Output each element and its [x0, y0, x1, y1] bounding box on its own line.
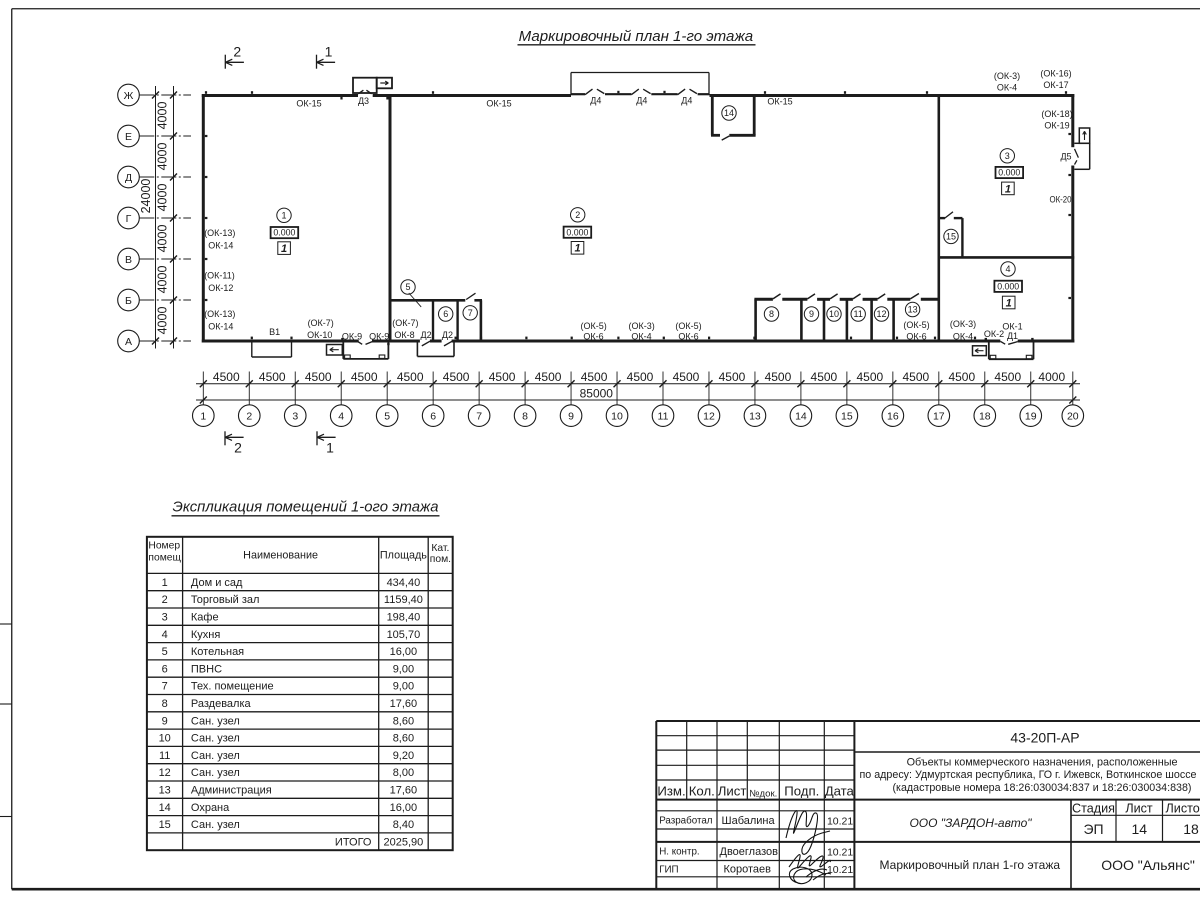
svg-text:12: 12	[703, 410, 715, 422]
svg-text:17: 17	[933, 410, 945, 422]
svg-text:В1: В1	[269, 327, 280, 337]
svg-text:(ОК-3): (ОК-3)	[950, 319, 976, 329]
svg-text:9: 9	[162, 715, 168, 727]
svg-text:11: 11	[854, 309, 863, 319]
svg-text:4000: 4000	[156, 225, 170, 253]
svg-text:2025,90: 2025,90	[384, 836, 424, 848]
svg-text:0.000: 0.000	[998, 168, 1020, 178]
svg-text:(ОК-5): (ОК-5)	[903, 320, 929, 330]
svg-text:Д1: Д1	[1007, 331, 1018, 341]
svg-text:4500: 4500	[305, 370, 332, 384]
svg-text:4: 4	[338, 410, 344, 422]
svg-text:Сан. узел: Сан. узел	[191, 750, 240, 762]
svg-text:9: 9	[568, 410, 574, 422]
svg-text:105,70: 105,70	[387, 629, 421, 641]
svg-text:13: 13	[159, 784, 171, 796]
svg-text:1: 1	[325, 44, 333, 60]
svg-text:Д4: Д4	[636, 96, 647, 106]
svg-text:4500: 4500	[673, 370, 700, 384]
svg-text:Листов: Листов	[1166, 801, 1200, 815]
svg-text:ОК-17: ОК-17	[1043, 80, 1068, 90]
svg-text:Изм.: Изм.	[657, 784, 685, 799]
svg-text:Площадь: Площадь	[380, 550, 427, 562]
svg-text:1: 1	[200, 410, 206, 422]
svg-text:8,60: 8,60	[393, 733, 414, 745]
svg-text:Д5: Д5	[1060, 151, 1071, 161]
svg-text:13: 13	[908, 305, 918, 315]
svg-text:В: В	[125, 254, 132, 266]
svg-text:85000: 85000	[580, 386, 614, 400]
svg-text:4: 4	[1005, 264, 1010, 274]
svg-text:2: 2	[162, 594, 168, 606]
svg-text:18: 18	[979, 410, 991, 422]
svg-text:8: 8	[162, 698, 168, 710]
svg-text:ОК-15: ОК-15	[296, 99, 321, 109]
svg-text:4500: 4500	[627, 370, 654, 384]
svg-text:15: 15	[841, 410, 853, 422]
svg-text:Разработал: Разработал	[659, 816, 713, 827]
svg-text:Кат.: Кат.	[431, 543, 449, 554]
svg-text:Д4: Д4	[681, 96, 692, 106]
svg-text:№док.: №док.	[749, 788, 777, 799]
svg-text:4: 4	[162, 629, 168, 641]
svg-text:пом.: пом.	[430, 554, 451, 565]
svg-text:4500: 4500	[535, 370, 562, 384]
svg-text:Д2: Д2	[442, 330, 453, 340]
svg-text:434,40: 434,40	[387, 577, 421, 589]
svg-text:2: 2	[246, 410, 252, 422]
svg-text:ЭП: ЭП	[1083, 821, 1103, 837]
svg-text:Н. контр.: Н. контр.	[659, 847, 699, 858]
svg-text:3: 3	[292, 410, 298, 422]
svg-text:4500: 4500	[948, 370, 975, 384]
svg-text:1: 1	[162, 577, 168, 589]
svg-text:Объекты коммерческого назначен: Объекты коммерческого назначения, распол…	[907, 756, 1178, 768]
svg-text:5: 5	[162, 646, 168, 658]
svg-text:(ОК-16): (ОК-16)	[1040, 69, 1071, 79]
svg-text:15: 15	[946, 232, 956, 242]
svg-text:(ОК-7): (ОК-7)	[392, 318, 418, 328]
svg-text:17,60: 17,60	[390, 698, 418, 710]
svg-text:Сан. узел: Сан. узел	[191, 733, 240, 745]
svg-text:Б: Б	[125, 295, 132, 307]
svg-text:ОК-4: ОК-4	[997, 83, 1017, 93]
svg-text:Дом и сад: Дом и сад	[191, 577, 243, 589]
svg-text:4500: 4500	[351, 370, 378, 384]
svg-text:14: 14	[1132, 821, 1148, 837]
svg-text:Тех. помещение: Тех. помещение	[191, 681, 274, 693]
svg-text:Маркировочный план 1-го этажа: Маркировочный план 1-го этажа	[519, 28, 754, 45]
svg-text:15: 15	[159, 819, 171, 831]
svg-text:9,00: 9,00	[393, 681, 414, 693]
svg-text:10: 10	[611, 410, 623, 422]
svg-text:8,00: 8,00	[393, 767, 414, 779]
svg-text:20: 20	[1067, 410, 1079, 422]
svg-text:(ОК-3): (ОК-3)	[994, 71, 1020, 81]
svg-text:7: 7	[468, 308, 473, 318]
svg-text:ОК-14: ОК-14	[208, 241, 233, 251]
svg-text:(ОК-11): (ОК-11)	[204, 270, 235, 280]
svg-text:12: 12	[159, 767, 171, 779]
svg-text:ОК-15: ОК-15	[767, 97, 792, 107]
svg-text:4000: 4000	[156, 307, 170, 335]
svg-text:ОК-10: ОК-10	[307, 330, 332, 340]
svg-text:10: 10	[159, 733, 171, 745]
svg-text:Д2: Д2	[421, 330, 432, 340]
svg-text:10.21: 10.21	[827, 846, 853, 858]
svg-text:3: 3	[1005, 151, 1010, 161]
svg-text:4500: 4500	[213, 370, 240, 384]
svg-text:(ОК-7): (ОК-7)	[308, 318, 334, 328]
svg-text:(ОК-3): (ОК-3)	[628, 321, 654, 331]
svg-text:Лист: Лист	[718, 784, 747, 799]
svg-text:8: 8	[522, 410, 528, 422]
svg-text:Двоеглазов: Двоеглазов	[720, 846, 779, 858]
svg-text:Охрана: Охрана	[191, 802, 230, 814]
svg-text:Экспликация помещений 1-ого эт: Экспликация помещений 1-ого этажа	[173, 499, 439, 516]
svg-text:1: 1	[1005, 183, 1011, 195]
svg-text:помещ.: помещ.	[148, 553, 183, 564]
svg-text:7: 7	[476, 410, 482, 422]
svg-text:Номер: Номер	[148, 541, 180, 552]
svg-text:7: 7	[162, 681, 168, 693]
svg-text:Кол.: Кол.	[689, 784, 715, 799]
svg-text:6: 6	[430, 410, 436, 422]
svg-text:6: 6	[443, 309, 448, 319]
svg-text:А: А	[125, 336, 132, 348]
svg-text:ОК-8: ОК-8	[394, 330, 414, 340]
svg-text:12: 12	[876, 309, 886, 319]
svg-text:9,00: 9,00	[393, 663, 414, 675]
svg-text:4500: 4500	[857, 370, 884, 384]
svg-text:0.000: 0.000	[566, 227, 588, 237]
svg-text:1159,40: 1159,40	[384, 594, 423, 606]
svg-text:0.000: 0.000	[273, 228, 295, 238]
svg-text:Ж: Ж	[124, 90, 134, 102]
svg-text:2: 2	[233, 44, 241, 60]
svg-text:13: 13	[749, 410, 761, 422]
svg-text:Г: Г	[126, 213, 132, 225]
svg-text:Д3: Д3	[358, 96, 369, 106]
svg-text:Д: Д	[125, 172, 132, 184]
svg-text:Лист: Лист	[1125, 801, 1153, 815]
svg-text:(ОК-5): (ОК-5)	[675, 321, 701, 331]
svg-text:198,40: 198,40	[387, 611, 421, 623]
svg-text:Администрация: Администрация	[191, 784, 272, 796]
svg-text:Шабалина: Шабалина	[722, 815, 776, 827]
svg-text:9: 9	[809, 309, 814, 319]
svg-text:2: 2	[575, 210, 580, 220]
svg-text:(ОК-5): (ОК-5)	[580, 321, 606, 331]
svg-text:16,00: 16,00	[390, 802, 418, 814]
svg-text:ОК-9: ОК-9	[342, 331, 362, 341]
svg-text:4500: 4500	[581, 370, 608, 384]
svg-text:Котельная: Котельная	[191, 646, 244, 658]
svg-text:ОК-6: ОК-6	[678, 331, 698, 341]
svg-text:14: 14	[159, 802, 171, 814]
svg-text:ПВНС: ПВНС	[191, 663, 222, 675]
svg-text:(ОК-13): (ОК-13)	[204, 309, 235, 319]
svg-text:8,40: 8,40	[393, 819, 414, 831]
svg-text:1: 1	[326, 439, 334, 455]
svg-text:11: 11	[159, 750, 170, 762]
svg-text:ОК-20: ОК-20	[1050, 195, 1072, 205]
svg-text:10: 10	[829, 309, 839, 319]
svg-text:10.21: 10.21	[827, 816, 853, 828]
svg-text:16: 16	[887, 410, 899, 422]
svg-text:Сан. узел: Сан. узел	[191, 715, 240, 727]
svg-text:по адресу: Удмуртская республи: по адресу: Удмуртская республика, ГО г. …	[860, 769, 1197, 781]
svg-text:ОК-14: ОК-14	[208, 321, 233, 331]
svg-text:ОК-15: ОК-15	[486, 99, 511, 109]
svg-text:3: 3	[162, 611, 168, 623]
svg-text:8,60: 8,60	[393, 715, 414, 727]
svg-text:4500: 4500	[811, 370, 838, 384]
svg-text:4500: 4500	[489, 370, 516, 384]
svg-text:ОК-4: ОК-4	[631, 331, 651, 341]
svg-text:16,00: 16,00	[390, 646, 418, 658]
svg-text:ОК-6: ОК-6	[906, 331, 926, 341]
svg-text:19: 19	[1025, 410, 1037, 422]
svg-text:Подп.: Подп.	[784, 784, 819, 799]
svg-text:1: 1	[281, 211, 286, 221]
svg-text:4500: 4500	[994, 370, 1021, 384]
svg-text:4000: 4000	[156, 102, 170, 130]
svg-text:ООО "ЗАРДОН-авто": ООО "ЗАРДОН-авто"	[909, 816, 1032, 830]
svg-text:5: 5	[405, 282, 410, 292]
svg-text:4000: 4000	[1038, 370, 1065, 384]
svg-text:Дата: Дата	[825, 784, 855, 799]
svg-text:10.21: 10.21	[827, 864, 853, 876]
svg-text:Стадия: Стадия	[1072, 801, 1115, 815]
svg-text:Д4: Д4	[590, 96, 601, 106]
svg-text:Сан. узел: Сан. узел	[191, 767, 240, 779]
svg-text:Кухня: Кухня	[191, 629, 220, 641]
svg-text:ИТОГО: ИТОГО	[335, 836, 372, 848]
svg-text:ОК-6: ОК-6	[583, 331, 603, 341]
svg-text:4000: 4000	[156, 143, 170, 171]
svg-text:1: 1	[281, 243, 287, 255]
svg-text:Торговый зал: Торговый зал	[191, 594, 260, 606]
svg-text:ОК-19: ОК-19	[1044, 121, 1069, 131]
svg-text:4500: 4500	[902, 370, 929, 384]
svg-text:17,60: 17,60	[390, 784, 418, 796]
svg-text:11: 11	[658, 410, 669, 422]
svg-text:Наименование: Наименование	[243, 550, 318, 562]
svg-text:4500: 4500	[259, 370, 286, 384]
svg-text:5: 5	[384, 410, 390, 422]
svg-text:Е: Е	[125, 131, 132, 143]
svg-text:ОК-4: ОК-4	[953, 331, 973, 341]
svg-text:(ОК-18): (ОК-18)	[1041, 109, 1072, 119]
svg-text:ГИП: ГИП	[659, 864, 678, 875]
svg-text:1: 1	[574, 243, 580, 255]
svg-text:(ОК-13): (ОК-13)	[204, 228, 235, 238]
svg-text:4000: 4000	[156, 266, 170, 294]
svg-text:24000: 24000	[139, 179, 153, 214]
svg-text:(кадастровые номера 18:26:0300: (кадастровые номера 18:26:030034:837 и 1…	[893, 782, 1192, 794]
svg-text:8: 8	[769, 309, 774, 319]
svg-text:0.000: 0.000	[997, 281, 1019, 291]
svg-text:14: 14	[724, 108, 734, 118]
svg-text:ОК-2: ОК-2	[984, 329, 1004, 339]
svg-text:4000: 4000	[156, 184, 170, 212]
svg-text:Кафе: Кафе	[191, 611, 219, 623]
svg-text:Раздевалка: Раздевалка	[191, 698, 252, 710]
svg-text:18: 18	[1183, 821, 1199, 837]
svg-text:4500: 4500	[397, 370, 424, 384]
svg-text:Коротаев: Коротаев	[724, 864, 772, 876]
svg-text:ОК-12: ОК-12	[208, 283, 233, 293]
svg-text:1: 1	[1006, 297, 1012, 309]
svg-text:ООО "Альянс": ООО "Альянс"	[1101, 857, 1195, 873]
svg-text:6: 6	[162, 663, 168, 675]
svg-text:2: 2	[234, 439, 242, 455]
svg-text:4500: 4500	[765, 370, 792, 384]
svg-text:ОК-9: ОК-9	[369, 331, 389, 341]
svg-text:4500: 4500	[719, 370, 746, 384]
svg-text:43-20П-АР: 43-20П-АР	[1010, 729, 1079, 745]
svg-text:14: 14	[795, 410, 807, 422]
svg-text:4500: 4500	[443, 370, 470, 384]
svg-text:Сан. узел: Сан. узел	[191, 819, 240, 831]
svg-text:Маркировочный план 1-го этажа: Маркировочный план 1-го этажа	[880, 858, 1061, 872]
svg-text:9,20: 9,20	[393, 750, 414, 762]
